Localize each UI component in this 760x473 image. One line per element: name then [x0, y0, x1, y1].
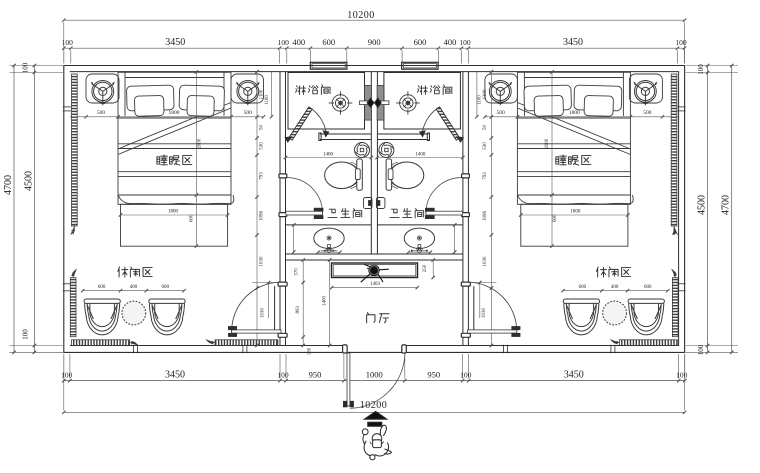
svg-text:1096: 1096: [483, 211, 488, 222]
svg-text:1100: 1100: [477, 95, 482, 105]
svg-text:600: 600: [161, 285, 169, 290]
svg-text:500: 500: [244, 110, 253, 116]
svg-text:50: 50: [259, 125, 264, 131]
svg-text:1100: 1100: [483, 89, 488, 99]
svg-text:1030: 1030: [482, 308, 487, 319]
svg-text:600: 600: [414, 37, 427, 47]
svg-text:2000: 2000: [198, 138, 203, 149]
svg-text:600: 600: [326, 247, 332, 252]
svg-text:400: 400: [292, 37, 305, 47]
svg-text:1800: 1800: [569, 110, 580, 116]
svg-text:100: 100: [676, 370, 688, 379]
svg-text:600: 600: [98, 285, 106, 290]
svg-text:100: 100: [22, 62, 30, 73]
svg-text:600: 600: [322, 37, 335, 47]
svg-text:50: 50: [483, 125, 488, 131]
svg-text:500: 500: [97, 110, 106, 116]
svg-text:100: 100: [697, 64, 705, 75]
svg-text:600: 600: [644, 285, 652, 290]
svg-text:3450: 3450: [165, 37, 185, 48]
svg-text:530: 530: [483, 142, 488, 150]
svg-text:1030: 1030: [261, 308, 266, 319]
svg-text:100: 100: [459, 38, 471, 47]
svg-text:893: 893: [296, 305, 301, 313]
svg-text:1030: 1030: [259, 256, 264, 267]
svg-text:950: 950: [309, 369, 322, 379]
svg-text:3450: 3450: [563, 37, 583, 48]
svg-text:250: 250: [423, 264, 428, 272]
svg-text:950: 950: [427, 369, 440, 379]
svg-text:2000: 2000: [545, 138, 550, 149]
svg-text:100: 100: [62, 38, 74, 47]
svg-text:10200: 10200: [347, 10, 375, 21]
svg-text:1100: 1100: [265, 95, 270, 105]
svg-text:1100: 1100: [259, 89, 264, 99]
svg-text:10200: 10200: [360, 400, 388, 411]
svg-text:100: 100: [22, 329, 30, 340]
svg-text:1403: 1403: [370, 282, 381, 287]
svg-text:1030: 1030: [483, 256, 488, 267]
svg-text:793: 793: [483, 172, 488, 180]
svg-text:1000: 1000: [366, 369, 383, 379]
svg-text:793: 793: [259, 172, 264, 180]
svg-text:1800: 1800: [169, 110, 180, 116]
svg-text:1400: 1400: [415, 152, 426, 157]
svg-text:530: 530: [259, 142, 264, 150]
svg-text:600: 600: [579, 285, 587, 290]
svg-text:4500: 4500: [24, 171, 35, 191]
svg-text:100: 100: [697, 344, 705, 355]
svg-text:1800: 1800: [570, 210, 581, 215]
svg-text:370: 370: [295, 268, 300, 276]
svg-text:400: 400: [611, 285, 619, 290]
svg-text:3450: 3450: [165, 369, 185, 380]
svg-text:4500: 4500: [697, 195, 708, 215]
svg-text:400: 400: [130, 285, 138, 290]
svg-text:400: 400: [444, 37, 457, 47]
svg-text:500: 500: [643, 110, 652, 116]
svg-text:100: 100: [61, 370, 73, 379]
svg-text:1096: 1096: [259, 211, 264, 222]
svg-text:3450: 3450: [564, 369, 584, 380]
svg-text:1800: 1800: [168, 210, 179, 215]
svg-text:900: 900: [368, 37, 381, 47]
svg-text:100: 100: [277, 370, 289, 379]
svg-text:1400: 1400: [322, 296, 327, 307]
svg-text:1400: 1400: [323, 152, 334, 157]
svg-text:4700: 4700: [721, 195, 732, 215]
svg-text:500: 500: [496, 110, 505, 116]
svg-text:130: 130: [308, 347, 313, 355]
svg-text:600: 600: [416, 247, 422, 252]
svg-text:4700: 4700: [3, 175, 14, 195]
svg-text:100: 100: [460, 370, 472, 379]
svg-text:100: 100: [675, 38, 687, 47]
svg-text:100: 100: [278, 38, 290, 47]
